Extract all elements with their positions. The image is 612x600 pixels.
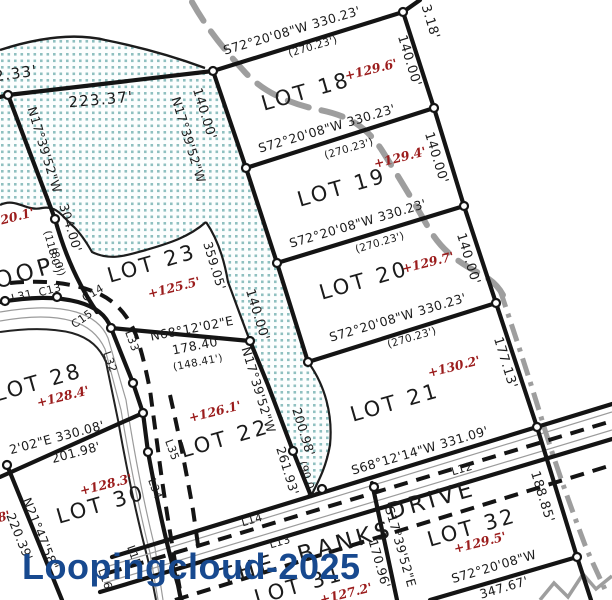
segment-label: C14 [80,282,106,303]
distance-label: 140.00' [454,232,482,287]
plat-map: S72°20'08"W 330.23'(270.23')S72°20'08"W … [0,0,612,600]
spot-elevation-label: +129.4' [373,145,428,170]
distance-label: 2.33' [0,64,39,85]
paren-distance-label: (270.23') [287,35,338,59]
bearing-label: 200.98' [290,406,317,457]
paren-distance-label: (270.23') [323,137,374,161]
paren-distance-label: (270.23') [386,326,437,350]
distance-label: 3.18' [419,3,442,41]
spot-elevation-label: +125.5' [147,275,202,300]
bearing-label: 304.00' [57,202,84,253]
segment-label: L31 [10,288,34,304]
distance-label: 140.00' [243,288,271,343]
watermark: Loopingcloud-2025 [22,546,361,588]
distance-label: 223.37' [68,90,134,111]
distance-label: 177.13' [491,336,519,391]
segment-label: L34 [146,477,164,501]
spot-elevation-label: +126.1' [188,399,243,424]
distance-label: 140.00' [395,34,423,89]
distance-label: 188.85' [528,470,556,525]
bearing-label: 347.67' [478,575,529,600]
bearing-label: 359.05' [201,240,228,291]
paren-distance-label: (270.23') [354,231,405,255]
spot-elevation-label: +129.7' [401,250,456,275]
bearing-label: N17°39'52"W [25,105,63,194]
labels-layer: S72°20'08"W 330.23'(270.23')S72°20'08"W … [0,0,612,600]
segment-label: L33 [123,329,141,353]
lot-label: LOT 20 [317,258,411,303]
segment-label: C15 [69,308,94,330]
lot-label: LOT 19 [295,165,389,210]
segment-label: L32 [101,350,119,374]
segment-label: C13 [37,282,62,298]
spot-elevation-label: +130.2' [427,354,482,379]
spot-elevation-label: 8' [0,509,12,524]
segment-label: L14 [240,512,264,529]
lot-label: LOT 21 [348,380,442,425]
bearing-label: 261.93' [274,445,301,496]
lot-label: LOT 18 [259,69,353,114]
spot-elevation-label: +129.6' [344,57,399,82]
spot-elevation-label: +120.1' [0,206,35,231]
